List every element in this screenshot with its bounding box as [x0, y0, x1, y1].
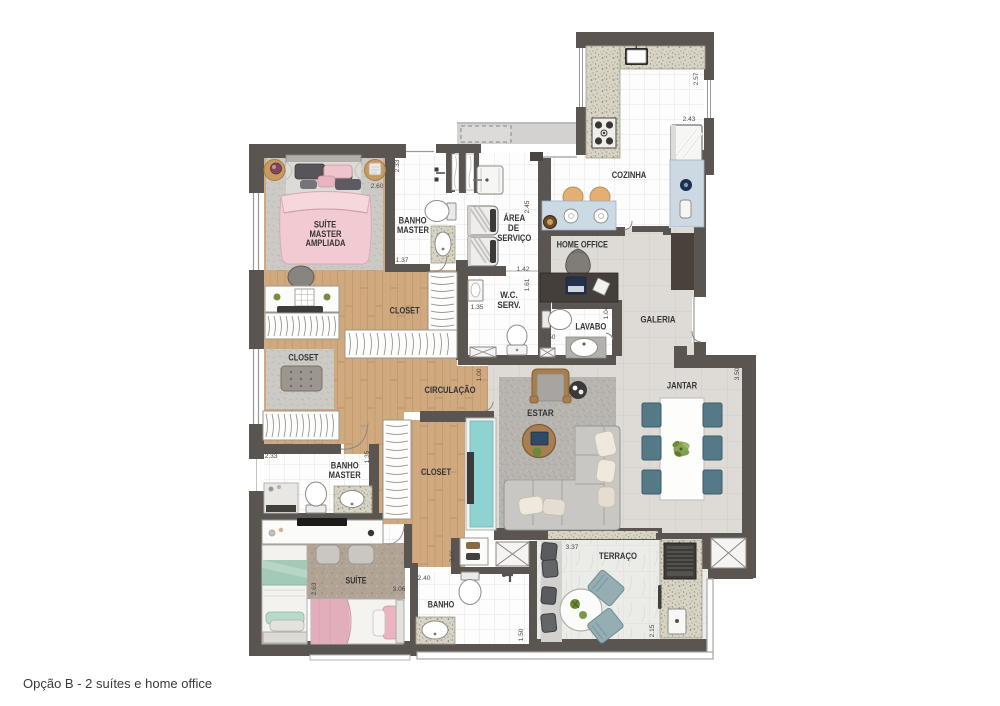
svg-text:1.00: 1.00	[476, 368, 483, 381]
svg-text:MASTER: MASTER	[397, 224, 430, 235]
svg-text:GALERIA: GALERIA	[640, 314, 676, 325]
svg-text:2.33: 2.33	[265, 453, 278, 460]
svg-text:3.06: 3.06	[449, 549, 456, 562]
svg-text:1.61: 1.61	[524, 278, 531, 291]
svg-text:CIRCULAÇÃO: CIRCULAÇÃO	[424, 384, 475, 395]
svg-text:COZINHA: COZINHA	[612, 169, 647, 180]
svg-text:2.33: 2.33	[394, 159, 401, 172]
svg-text:1.37: 1.37	[396, 257, 409, 264]
svg-text:2.45: 2.45	[524, 200, 531, 213]
svg-text:MASTER: MASTER	[329, 469, 362, 480]
svg-text:1.35: 1.35	[364, 450, 371, 463]
svg-text:CLOSET: CLOSET	[390, 305, 421, 316]
svg-text:TERRAÇO: TERRAÇO	[599, 550, 637, 561]
svg-text:LAVABO: LAVABO	[575, 321, 606, 332]
svg-text:1.35: 1.35	[471, 304, 484, 311]
svg-text:3.06: 3.06	[393, 586, 406, 593]
svg-text:2.63: 2.63	[311, 582, 318, 595]
svg-text:BANHO: BANHO	[428, 598, 455, 609]
svg-text:2.57: 2.57	[693, 72, 700, 85]
svg-text:AMPLIADA: AMPLIADA	[305, 237, 345, 248]
svg-text:ESTAR: ESTAR	[527, 407, 554, 418]
svg-text:1.04: 1.04	[603, 306, 610, 319]
svg-text:CLOSET: CLOSET	[288, 352, 319, 363]
svg-text:SUÍTE: SUÍTE	[345, 574, 367, 585]
svg-text:JANTAR: JANTAR	[667, 379, 698, 390]
svg-text:3.37: 3.37	[566, 544, 579, 551]
svg-text:2.60: 2.60	[371, 183, 384, 190]
svg-text:HOME OFFICE: HOME OFFICE	[557, 239, 609, 250]
svg-text:SERV.: SERV.	[497, 299, 520, 310]
svg-text:1.50: 1.50	[543, 334, 556, 341]
svg-text:2.15: 2.15	[649, 624, 656, 637]
svg-text:3.50: 3.50	[734, 367, 741, 380]
svg-text:SERVIÇO: SERVIÇO	[497, 232, 531, 243]
svg-text:2.40: 2.40	[418, 575, 431, 582]
svg-text:1.42: 1.42	[517, 266, 530, 273]
svg-text:1.50: 1.50	[518, 628, 525, 641]
svg-text:CLOSET: CLOSET	[421, 466, 452, 477]
svg-text:2.43: 2.43	[683, 116, 696, 123]
